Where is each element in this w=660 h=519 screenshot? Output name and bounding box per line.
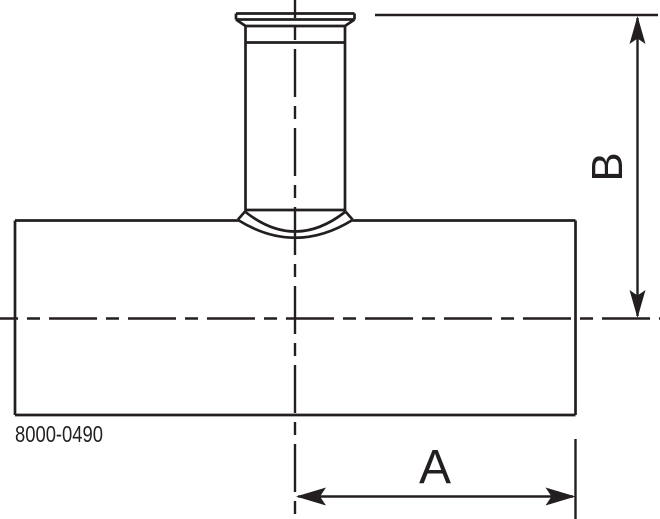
dimension-a: A [296, 439, 576, 519]
part-number-label: 8000-0490 [15, 421, 103, 447]
technical-drawing: B A 8000-0490 [0, 0, 660, 519]
dim-label-a: A [419, 441, 451, 494]
weld-left-flare [238, 211, 246, 220]
fitting-drawing-canvas: B A 8000-0490 [0, 0, 660, 519]
weld-right-flare [345, 211, 353, 220]
dimension-b: B [375, 15, 658, 318]
dim-label-b: B [583, 152, 632, 181]
